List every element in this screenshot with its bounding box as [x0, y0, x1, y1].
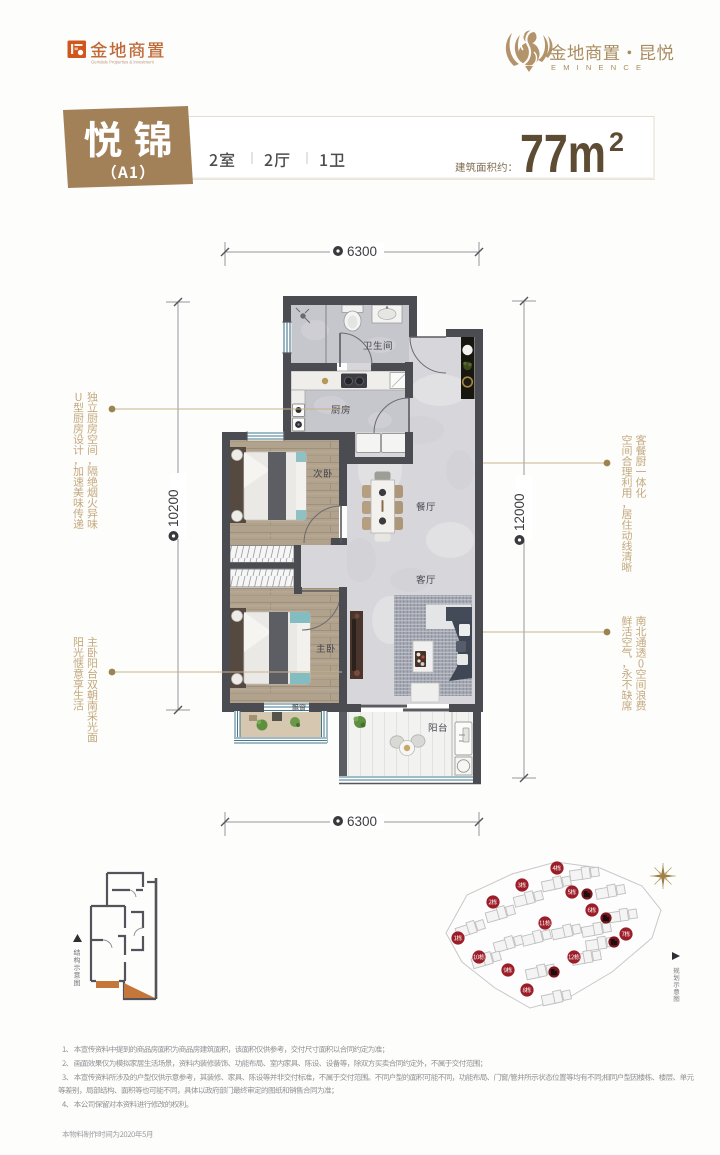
svg-text:EMINENCE: EMINENCE: [551, 63, 648, 72]
svg-text:Gemdale Properties & Investmen: Gemdale Properties & Investment: [91, 60, 155, 65]
svg-text:6300: 6300: [347, 244, 377, 259]
svg-text:12000: 12000: [512, 493, 527, 531]
svg-text:77m: 77m: [520, 124, 606, 184]
svg-text:2: 2: [609, 127, 624, 157]
svg-text:10200: 10200: [166, 489, 181, 527]
svg-text:6300: 6300: [347, 814, 377, 829]
